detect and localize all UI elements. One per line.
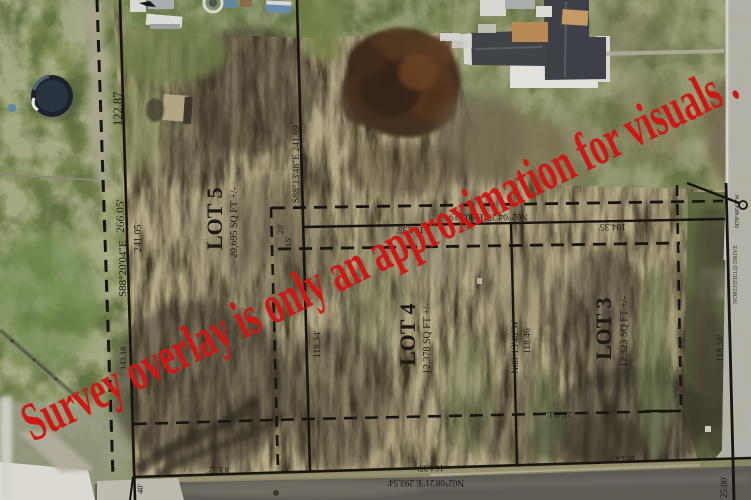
svg-text:12,378 SQ FT +/-: 12,378 SQ FT +/- — [422, 303, 433, 374]
svg-text:103.47': 103.47' — [609, 454, 636, 464]
svg-text:N79°48'41"W: N79°48'41"W — [734, 194, 741, 228]
svg-text:S88°20'04"E: S88°20'04"E — [117, 240, 129, 297]
svg-text:118.58': 118.58' — [716, 334, 726, 362]
svg-text:40': 40' — [135, 484, 145, 495]
svg-text:122.87: 122.87 — [111, 92, 125, 126]
svg-text:12,323 SQ FT +/-: 12,323 SQ FT +/- — [619, 296, 630, 367]
svg-text:164.35': 164.35' — [417, 463, 444, 473]
svg-text:25' B.L.: 25' B.L. — [545, 410, 572, 420]
svg-text:25.00': 25.00' — [719, 476, 729, 498]
svg-text:20': 20' — [275, 224, 285, 235]
svg-text:NORTHFIELD DRIVE: NORTHFIELD DRIVE — [732, 245, 739, 304]
svg-text:LOT 4: LOT 4 — [395, 303, 420, 366]
svg-text:104.35': 104.35' — [598, 221, 626, 231]
svg-text:LOT 3: LOT 3 — [591, 297, 616, 360]
svg-text:83.52': 83.52' — [207, 465, 229, 475]
svg-text:N02°08'21"E 293.54': N02°08'21"E 293.54' — [387, 478, 464, 488]
svg-text:118.34': 118.34' — [313, 330, 323, 358]
svg-text:S88°13'48"E 241.69: S88°13'48"E 241.69 — [291, 125, 302, 203]
svg-text:15': 15' — [283, 237, 293, 248]
svg-text:20,695 SQ FT +/-: 20,695 SQ FT +/- — [229, 187, 240, 258]
svg-text:N88°13'48"W: N88°13'48"W — [510, 320, 521, 374]
svg-text:266.05': 266.05' — [115, 199, 127, 233]
svg-text:118.46: 118.46 — [523, 328, 533, 354]
svg-text:241.05: 241.05 — [133, 225, 144, 253]
svg-text:LOT 5: LOT 5 — [202, 187, 227, 250]
